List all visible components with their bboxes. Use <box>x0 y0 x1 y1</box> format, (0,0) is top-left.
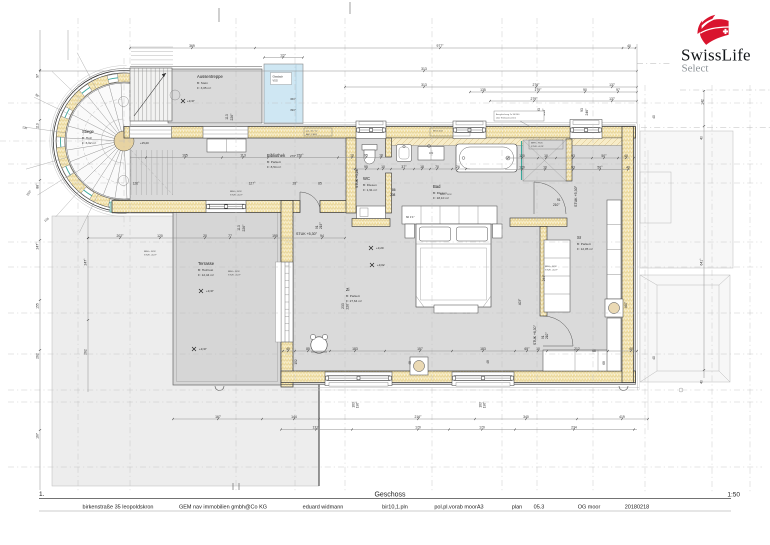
svg-text:460°: 460° <box>624 301 628 308</box>
svg-text:88°: 88° <box>36 183 40 189</box>
svg-text:STUK +5,28: STUK +5,28 <box>355 169 359 188</box>
svg-text:262: 262 <box>36 353 40 359</box>
svg-text:STUK +5,07°: STUK +5,07° <box>230 195 243 197</box>
svg-text:10: 10 <box>350 153 354 157</box>
svg-text:167: 167 <box>36 433 40 439</box>
svg-text:+3,37: +3,37 <box>206 289 214 293</box>
svg-text:105: 105 <box>182 153 188 157</box>
svg-text:STUK +5,28°: STUK +5,28° <box>531 146 544 148</box>
svg-text:Zi: Zi <box>346 287 350 292</box>
svg-text:STUK +5,07°: STUK +5,07° <box>228 275 241 277</box>
svg-text:157: 157 <box>417 347 423 351</box>
svg-text:B: Parkett: B: Parkett <box>267 160 281 164</box>
svg-text:85: 85 <box>306 347 310 351</box>
svg-text:202°: 202° <box>116 234 124 238</box>
svg-text:152: 152 <box>294 359 298 365</box>
svg-text:127: 127 <box>280 53 286 57</box>
svg-text:F: 6,62 m²: F: 6,62 m² <box>82 141 96 145</box>
svg-text:BRH + RCK: BRH + RCK <box>440 194 452 196</box>
svg-text:95: 95 <box>364 153 368 157</box>
svg-text:VSG: VSG <box>273 80 278 83</box>
svg-text:137: 137 <box>609 97 615 101</box>
svg-text:Terrasse: Terrasse <box>198 261 215 266</box>
svg-text:126°: 126° <box>133 182 141 186</box>
svg-text:340: 340 <box>523 415 529 419</box>
svg-text:Sr: Sr <box>577 235 582 240</box>
svg-text:STUK +6,30°: STUK +6,30° <box>533 324 537 345</box>
svg-text:60 1'1°: 60 1'1° <box>406 215 415 219</box>
svg-text:+3,37: +3,37 <box>187 99 195 103</box>
svg-text:05.3: 05.3 <box>534 505 545 511</box>
svg-text:97: 97 <box>616 88 620 92</box>
svg-text:Bibliothek: Bibliothek <box>267 153 286 158</box>
svg-text:STUK +5,07°: STUK +5,07° <box>545 270 558 272</box>
svg-text:313: 313 <box>421 83 427 87</box>
svg-text:179°: 179° <box>534 88 542 92</box>
svg-text:170: 170 <box>415 425 421 429</box>
svg-text:Select: Select <box>682 63 709 75</box>
svg-text:170: 170 <box>479 425 485 429</box>
svg-text:+3,20: +3,20 <box>376 246 384 250</box>
svg-text:94: 94 <box>320 234 324 238</box>
svg-text:403°: 403° <box>518 298 522 305</box>
svg-text:1:50: 1:50 <box>727 492 740 499</box>
svg-text:226°: 226° <box>242 224 246 232</box>
svg-text:über Einbauleuchten: über Einbauleuchten <box>496 117 517 120</box>
svg-text:10: 10 <box>536 347 540 351</box>
svg-text:113: 113 <box>36 123 40 129</box>
svg-text:50°: 50° <box>597 165 603 169</box>
svg-text:pol.pl.vorab moorA3: pol.pl.vorab moorA3 <box>434 505 483 511</box>
svg-text:183: 183 <box>352 347 358 351</box>
svg-text:BRH + RCK: BRH + RCK <box>144 251 156 253</box>
svg-text:OG moor: OG moor <box>578 505 601 511</box>
svg-text:Glasdach: Glasdach <box>273 76 284 79</box>
svg-text:196°: 196° <box>356 401 360 408</box>
svg-text:120: 120 <box>519 165 525 169</box>
svg-text:210°: 210° <box>553 203 560 207</box>
svg-text:120: 120 <box>519 154 525 158</box>
svg-text:313: 313 <box>421 67 427 71</box>
svg-text:B: Parkett: B: Parkett <box>346 294 360 298</box>
svg-text:40: 40 <box>652 356 656 360</box>
svg-text:262: 262 <box>84 349 88 355</box>
svg-text:40: 40 <box>700 380 704 384</box>
svg-text:+3,37: +3,37 <box>199 347 207 351</box>
svg-text:STUK +5,30°: STUK +5,30° <box>296 232 318 236</box>
svg-text:B: Holz: B: Holz <box>82 136 92 140</box>
svg-text:155: 155 <box>36 303 40 309</box>
svg-text:65°: 65° <box>524 347 530 351</box>
svg-text:40: 40 <box>700 136 704 140</box>
svg-text:20180218: 20180218 <box>625 505 649 511</box>
svg-text:BRH + RCK: BRH + RCK <box>228 271 240 273</box>
svg-text:85: 85 <box>318 182 322 186</box>
svg-text:10: 10 <box>543 165 547 169</box>
svg-text:birkenstraße 35 leopoldskron: birkenstraße 35 leopoldskron <box>83 505 154 511</box>
svg-text:+15,20: +15,20 <box>140 141 149 145</box>
svg-text:68: 68 <box>602 361 606 365</box>
svg-text:48: 48 <box>408 361 412 365</box>
svg-text:142: 142 <box>701 99 705 105</box>
svg-text:276°: 276° <box>290 154 297 158</box>
svg-text:419: 419 <box>619 415 625 419</box>
svg-text:48: 48 <box>486 360 490 364</box>
svg-text:137: 137 <box>609 83 615 87</box>
svg-text:BRH + RCK: BRH + RCK <box>545 266 557 268</box>
svg-text:77: 77 <box>228 234 232 238</box>
svg-text:F: 8,54 m²: F: 8,54 m² <box>267 165 281 169</box>
svg-text:113: 113 <box>237 225 241 231</box>
svg-text:70: 70 <box>435 165 439 169</box>
svg-text:18: 18 <box>420 165 424 169</box>
svg-text:26: 26 <box>456 165 460 169</box>
svg-text:234: 234 <box>571 425 577 429</box>
svg-text:F: 12,44 m²: F: 12,44 m² <box>198 273 214 277</box>
svg-text:93: 93 <box>571 154 575 158</box>
svg-text:F: 18,10 m²: F: 18,10 m² <box>433 196 449 200</box>
svg-text:F: 3,05 m²: F: 3,05 m² <box>197 86 211 90</box>
svg-text:28°: 28° <box>293 182 299 186</box>
svg-text:40: 40 <box>627 44 631 48</box>
svg-text:279°: 279° <box>530 97 538 101</box>
svg-text:97: 97 <box>36 74 40 78</box>
svg-text:50°: 50° <box>601 154 607 158</box>
svg-text:210°: 210° <box>545 332 549 339</box>
svg-text:183: 183 <box>480 347 486 351</box>
svg-text:18: 18 <box>379 153 383 157</box>
svg-text:STUK +5,07°: STUK +5,07° <box>144 255 157 257</box>
svg-text:246°: 246° <box>585 108 589 116</box>
svg-text:226°: 226° <box>230 113 234 121</box>
svg-text:B: Stein: B: Stein <box>197 81 208 85</box>
svg-text:93: 93 <box>580 108 584 112</box>
svg-text:BRH + RCK: BRH + RCK <box>230 191 242 193</box>
svg-text:276°: 276° <box>532 83 540 87</box>
svg-text:40: 40 <box>652 115 656 119</box>
svg-text:B: Parkett: B: Parkett <box>577 242 591 246</box>
svg-text:247°: 247° <box>84 258 88 266</box>
svg-text:B: Fliesen: B: Fliesen <box>363 183 377 187</box>
svg-text:93: 93 <box>571 165 575 169</box>
svg-text:167: 167 <box>215 415 221 419</box>
svg-text:144: 144 <box>291 415 297 419</box>
svg-text:196°: 196° <box>483 401 487 408</box>
svg-text:189: 189 <box>429 151 434 155</box>
svg-text:40: 40 <box>286 347 290 351</box>
svg-text:113: 113 <box>240 153 246 157</box>
svg-text:Geschoss: Geschoss <box>374 492 406 499</box>
svg-text:135: 135 <box>480 88 486 92</box>
svg-text:20: 20 <box>203 234 207 238</box>
svg-text:SwissLife: SwissLife <box>681 45 751 64</box>
svg-text:pos. 52 / 12: pos. 52 / 12 <box>306 131 318 133</box>
svg-text:977°: 977° <box>436 44 444 48</box>
svg-text:ABC 13802: ABC 13802 <box>306 133 318 136</box>
svg-text:150°: 150° <box>296 153 304 157</box>
svg-text:219°: 219° <box>319 222 323 229</box>
svg-text:212: 212 <box>574 347 580 351</box>
svg-text:F: 27,64 m²: F: 27,64 m² <box>346 299 362 303</box>
svg-text:113: 113 <box>225 114 229 120</box>
svg-text:40: 40 <box>626 165 630 169</box>
svg-text:90: 90 <box>583 88 587 92</box>
svg-text:WC: WC <box>363 176 370 181</box>
svg-text:120: 120 <box>157 234 163 238</box>
svg-text:GEM nav immobilien gmbh@Co KG: GEM nav immobilien gmbh@Co KG <box>179 505 267 511</box>
svg-text:bir10,1.pln: bir10,1.pln <box>382 505 408 511</box>
svg-text:10: 10 <box>381 165 385 169</box>
svg-text:40: 40 <box>624 154 628 158</box>
svg-text:68: 68 <box>592 349 596 353</box>
svg-text:Bad: Bad <box>433 184 441 189</box>
svg-text:37°: 37° <box>401 165 407 169</box>
svg-text:plan: plan <box>512 505 522 511</box>
svg-text:247°: 247° <box>36 242 40 250</box>
svg-text:95: 95 <box>364 165 368 169</box>
svg-text:eduard widmann: eduard widmann <box>303 505 344 511</box>
svg-text:40: 40 <box>629 347 633 351</box>
svg-text:216°: 216° <box>414 415 422 419</box>
svg-text:641°: 641° <box>700 258 704 266</box>
svg-text:BRH + RCK: BRH + RCK <box>531 143 543 145</box>
svg-text:91: 91 <box>557 198 561 202</box>
svg-text:F: 12,05 m²: F: 12,05 m² <box>577 247 593 251</box>
svg-text:208: 208 <box>390 193 396 197</box>
svg-text:STUK +5,30°: STUK +5,30° <box>574 185 578 207</box>
svg-text:Aussentreppe: Aussentreppe <box>197 74 224 79</box>
svg-text:10: 10 <box>544 154 548 158</box>
svg-text:+3,02: +3,02 <box>377 263 385 267</box>
svg-text:131°: 131° <box>312 425 320 429</box>
svg-text:F: 1,91 m²: F: 1,91 m² <box>363 188 377 192</box>
svg-text:86: 86 <box>392 188 396 192</box>
svg-text:233: 233 <box>341 303 345 309</box>
svg-text:WD 13.02: WD 13.02 <box>433 131 444 133</box>
svg-text:B: Holzrost: B: Holzrost <box>198 268 213 272</box>
svg-text:190: 190 <box>272 234 278 238</box>
svg-text:127°: 127° <box>249 182 257 186</box>
svg-text:Stiege: Stiege <box>82 129 95 134</box>
svg-text:Ausgleichung 2x 30/140: Ausgleichung 2x 30/140 <box>496 113 520 116</box>
svg-text:369: 369 <box>189 44 195 48</box>
svg-text:1.: 1. <box>39 491 45 498</box>
svg-text:244°: 244° <box>542 274 546 281</box>
